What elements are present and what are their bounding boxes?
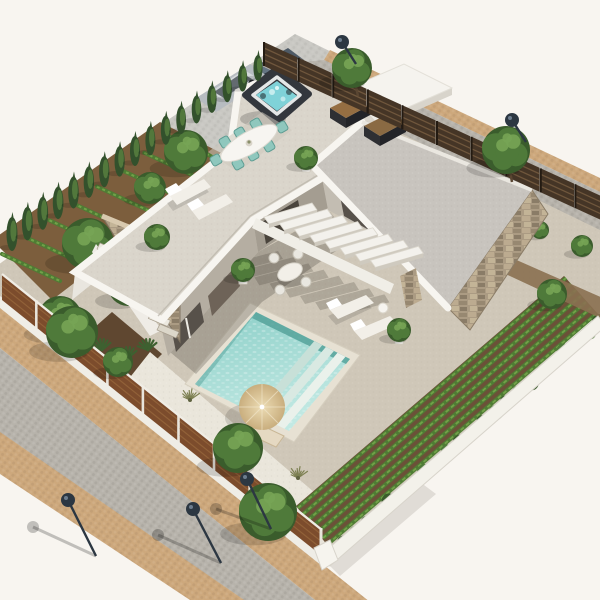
scene-canvas <box>0 0 600 600</box>
architectural-render <box>0 0 600 600</box>
side-table <box>378 303 388 313</box>
